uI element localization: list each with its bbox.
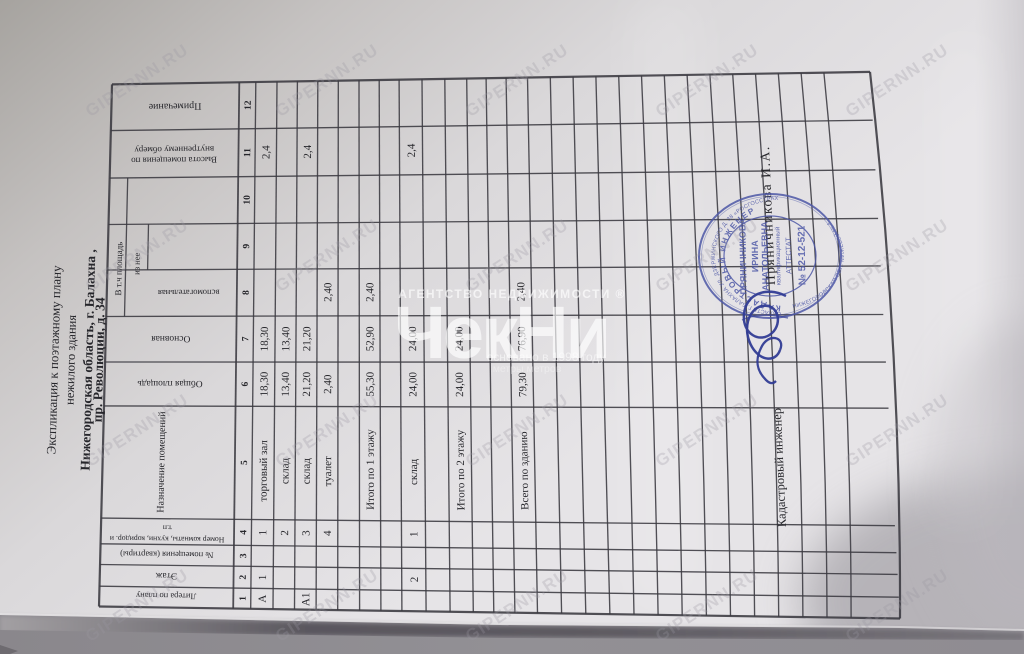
svg-text:2: 2 <box>409 577 421 583</box>
svg-text:5: 5 <box>240 460 250 465</box>
svg-text:7: 7 <box>241 336 251 341</box>
svg-text:18,30: 18,30 <box>258 371 270 396</box>
svg-text:8: 8 <box>242 290 252 295</box>
svg-text:3: 3 <box>239 553 249 558</box>
svg-text:т.п: т.п <box>163 523 172 532</box>
svg-text:52,90: 52,90 <box>364 326 376 351</box>
svg-text:2,40: 2,40 <box>364 282 376 302</box>
svg-text:торговый зал: торговый зал <box>258 440 271 502</box>
svg-text:основано в 1998 году: основано в 1998 году <box>487 350 606 364</box>
svg-text:Примечание: Примечание <box>148 100 201 112</box>
svg-text:2,4: 2,4 <box>302 144 314 158</box>
svg-text:11: 11 <box>243 148 253 157</box>
svg-text:склад: склад <box>408 458 420 485</box>
svg-text:внутреннему обмеру: внутреннему обмеру <box>134 144 214 155</box>
svg-text:79,30: 79,30 <box>517 372 529 397</box>
svg-text:2: 2 <box>279 530 291 536</box>
svg-text:6: 6 <box>241 381 251 386</box>
svg-text:1: 1 <box>408 531 420 537</box>
svg-text:туалет: туалет <box>322 456 334 486</box>
svg-text:Итого по 2 этажу: Итого по 2 этажу <box>455 429 468 510</box>
svg-text:ИРИНА: ИРИНА <box>750 240 761 273</box>
svg-text:24,00: 24,00 <box>454 372 466 397</box>
svg-text:пр. Революции, д. 34: пр. Революции, д. 34 <box>90 297 108 423</box>
svg-text:АТТЕСТАТ: АТТЕСТАТ <box>784 237 794 274</box>
svg-text:Всего по зданию: Всего по зданию <box>518 431 531 510</box>
svg-text:1: 1 <box>239 596 249 601</box>
svg-text:4: 4 <box>322 530 334 536</box>
svg-text:вспомогательная: вспомогательная <box>158 288 220 298</box>
svg-text:2: 2 <box>239 575 249 580</box>
svg-text:21,20: 21,20 <box>301 371 313 396</box>
svg-text:12: 12 <box>244 100 254 110</box>
svg-text:24,00: 24,00 <box>407 372 419 397</box>
svg-text:А: А <box>257 595 269 603</box>
svg-text:нежилого здания: нежилого здания <box>63 314 80 405</box>
svg-text:1: 1 <box>257 575 269 581</box>
svg-text:Основная: Основная <box>151 333 191 343</box>
svg-text:2,40: 2,40 <box>322 374 334 394</box>
svg-text:Итого по 1 этажу: Итого по 1 этажу <box>365 429 377 510</box>
svg-text:квалификационный: квалификационный <box>773 226 782 285</box>
svg-text:13,40: 13,40 <box>280 371 292 396</box>
svg-text:21,20: 21,20 <box>301 326 313 351</box>
svg-text:Номер комнаты, кухни, коридор.: Номер комнаты, кухни, коридор. и <box>110 534 225 544</box>
svg-text:4: 4 <box>239 530 249 535</box>
svg-text:18,30: 18,30 <box>259 326 271 351</box>
svg-text:№ помещения (квартиры): № помещения (квартиры) <box>120 549 214 560</box>
svg-text:2,4: 2,4 <box>406 143 418 157</box>
svg-text:Высота помещения по: Высота помещения по <box>131 155 217 166</box>
svg-text:13,40: 13,40 <box>280 326 292 351</box>
svg-text:2,40: 2,40 <box>322 282 334 302</box>
svg-text:№ 52-12-521: № 52-12-521 <box>796 225 808 285</box>
svg-text:3: 3 <box>300 530 312 536</box>
svg-text:2,4: 2,4 <box>260 145 272 159</box>
svg-text:склад: склад <box>301 458 313 485</box>
svg-text:Общая площадь: Общая площадь <box>137 378 203 389</box>
svg-text:1: 1 <box>257 530 269 536</box>
svg-text:метры метров: метры метров <box>493 363 562 375</box>
svg-text:10: 10 <box>243 195 253 205</box>
svg-text:9: 9 <box>242 244 252 249</box>
